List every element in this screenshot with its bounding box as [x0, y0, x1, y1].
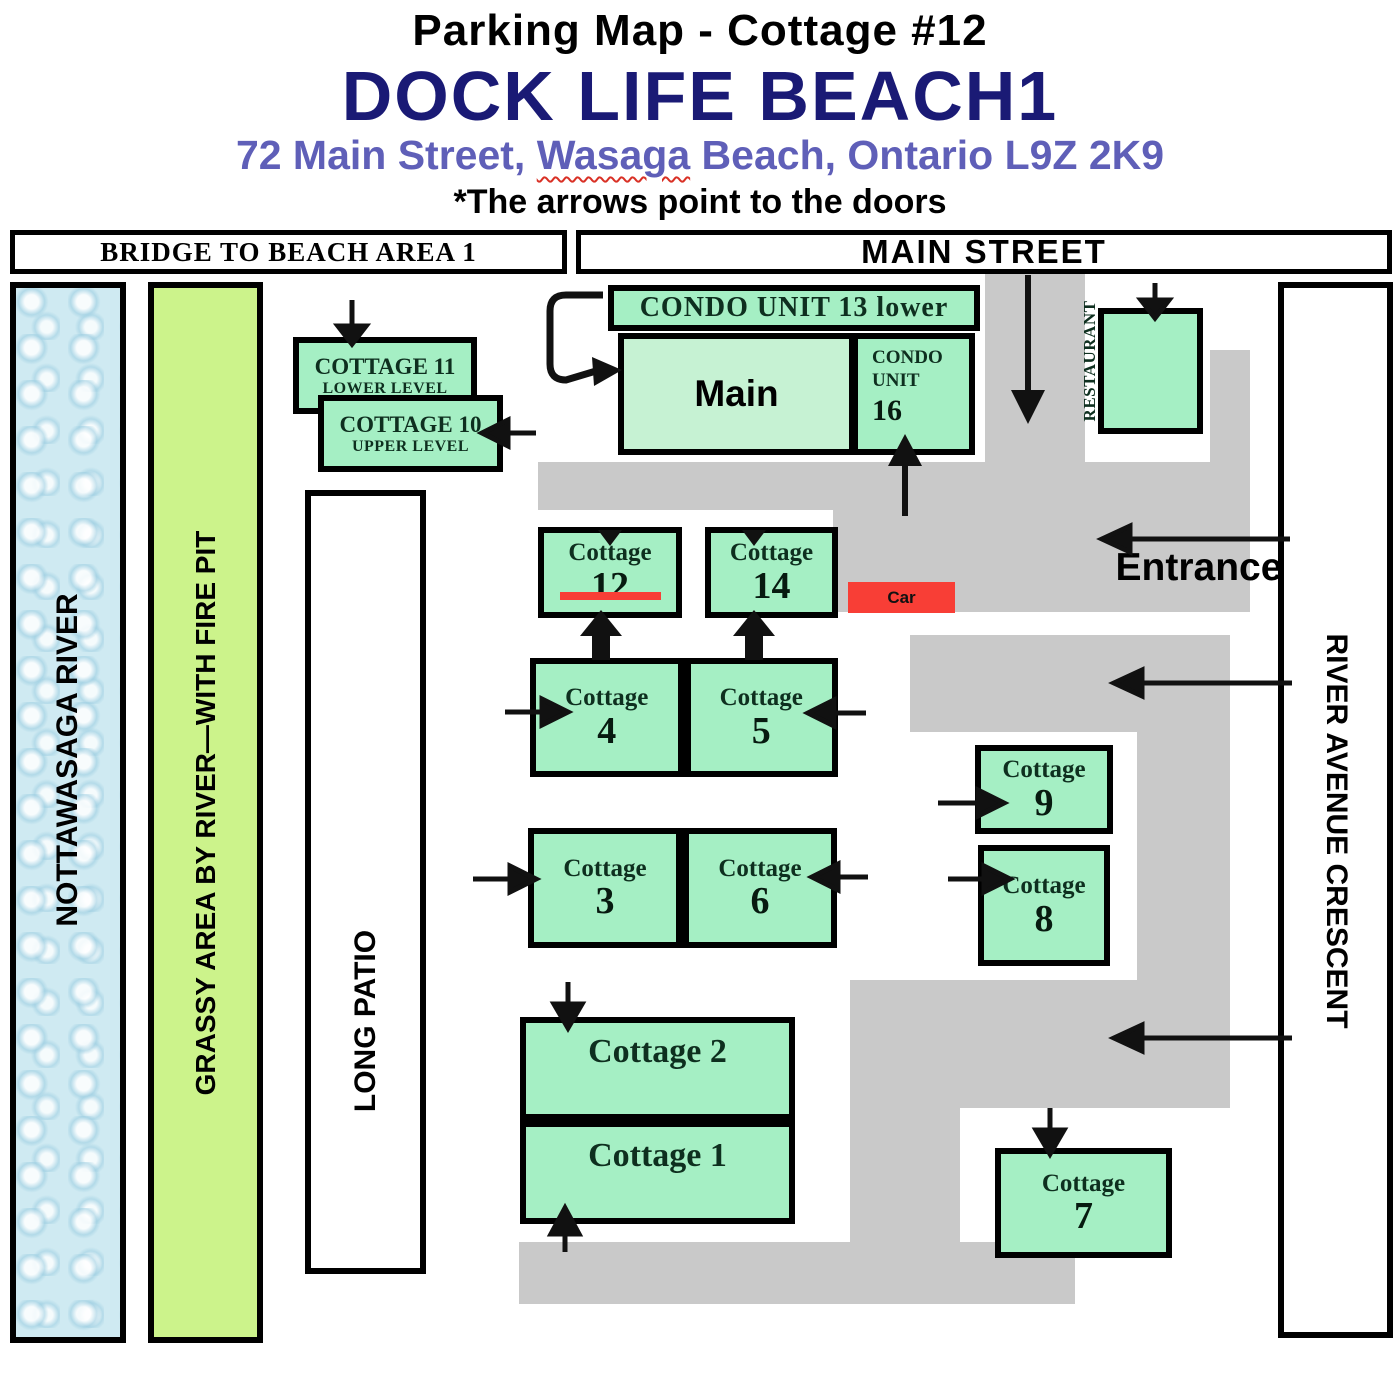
road-from-main-street: [985, 273, 1085, 473]
nottawasaga-river-strip: NOTTAWASAGA RIVER: [10, 282, 126, 1343]
cottage-1-label: Cottage 1: [588, 1137, 727, 1175]
condo-16-line1: CONDO: [872, 347, 943, 370]
arrow-cottage-3-door: [473, 866, 536, 892]
building-condo-unit-13: CONDO UNIT 13 lower: [608, 285, 980, 331]
cottage-1: Cottage 1: [526, 1127, 789, 1218]
grassy-strip-label: GRASSY AREA BY RIVER—WITH FIRE PIT: [190, 530, 222, 1095]
long-patio: LONG PATIO: [305, 490, 426, 1274]
address-line: 72 Main Street, Wasaga Beach, Ontario L9…: [0, 132, 1400, 179]
cottage-4-number: 4: [597, 712, 616, 750]
road-vertical-right: [1137, 732, 1230, 982]
cottage-4: Cottage 4: [536, 664, 678, 771]
cottage-7-word: Cottage: [1042, 1171, 1125, 1197]
cottage-8-word: Cottage: [1002, 873, 1085, 899]
cottage-8-number: 8: [1035, 900, 1054, 938]
building-cottage-14: Cottage 14: [705, 527, 838, 618]
address-squiggle-word: Wasaga: [537, 132, 690, 178]
river-avenue-strip: RIVER AVENUE CRESCENT: [1278, 282, 1393, 1338]
cottage-3: Cottage 3: [534, 834, 676, 942]
cottage-11-label: COTTAGE 11: [315, 354, 456, 380]
main-street-label: MAIN STREET: [576, 230, 1392, 274]
cottage-12-word: Cottage: [568, 540, 651, 566]
cottage-2-label: Cottage 2: [588, 1033, 727, 1071]
condo-16-number: 16: [872, 393, 902, 429]
cottage-10-sublabel: UPPER LEVEL: [352, 438, 469, 456]
cottage-3-number: 3: [596, 882, 615, 920]
cottage-12-red-underline: [560, 592, 661, 600]
building-condo-unit-16: CONDO UNIT 16: [852, 333, 975, 455]
road-column-lower: [850, 1108, 960, 1244]
road-band-bottom: [519, 1242, 1075, 1304]
building-cottage-3-6: Cottage 3 Cottage 6: [528, 828, 837, 948]
cottage-14-number: 14: [753, 567, 791, 605]
building-cottage-7: Cottage 7: [995, 1148, 1172, 1258]
building-cottage-10: COTTAGE 10 UPPER LEVEL: [318, 395, 503, 472]
cottage-4-word: Cottage: [565, 685, 648, 711]
cottage-6: Cottage 6: [689, 834, 831, 942]
cottage-4-5-divider: [678, 664, 691, 771]
address-post: Beach, Ontario L9Z 2K9: [690, 132, 1164, 178]
road-band-mid: [910, 635, 1230, 732]
cottage-7-number: 7: [1074, 1197, 1093, 1235]
arrows-note: *The arrows point to the doors: [0, 183, 1400, 222]
cottage-10-label: COTTAGE 10: [339, 412, 481, 438]
condo-16-line2: UNIT: [872, 370, 920, 393]
cottage-3-word: Cottage: [563, 856, 646, 882]
building-cottage-4-5: Cottage 4 Cottage 5: [530, 658, 838, 777]
long-patio-label: LONG PATIO: [349, 930, 383, 1112]
grassy-area-strip: GRASSY AREA BY RIVER—WITH FIRE PIT: [148, 282, 263, 1343]
cottage-14-word: Cottage: [730, 540, 813, 566]
entrance-label: Entrance: [1098, 546, 1300, 590]
main-building-label: Main: [694, 373, 778, 415]
road-block-lower: [850, 980, 1230, 1108]
cottage-9-word: Cottage: [1002, 757, 1085, 783]
cottage-2-1-divider: [526, 1114, 789, 1127]
building-restaurant: RESTAURANT: [1098, 308, 1203, 434]
cottage-2: Cottage 2: [526, 1023, 789, 1114]
cottage-5: Cottage 5: [691, 664, 833, 771]
building-cottage-12: Cottage 12: [538, 527, 682, 618]
road-notch-restaurant: [1210, 350, 1250, 466]
cottage-6-word: Cottage: [718, 856, 801, 882]
building-main: Main: [618, 333, 855, 455]
restaurant-label: RESTAURANT: [1080, 301, 1100, 422]
address-pre: 72 Main Street,: [236, 132, 537, 178]
cottage-6-number: 6: [751, 882, 770, 920]
building-cottage-9: Cottage 9: [975, 745, 1113, 834]
parking-map: Parking Map - Cottage #12 DOCK LIFE BEAC…: [0, 0, 1400, 1400]
cottage-5-word: Cottage: [720, 685, 803, 711]
cottage-3-6-divider: [676, 834, 689, 942]
river-strip-label: NOTTAWASAGA RIVER: [51, 593, 85, 926]
river-avenue-label: RIVER AVENUE CRESCENT: [1319, 633, 1353, 1028]
building-cottage-8: Cottage 8: [978, 845, 1110, 966]
bridge-to-beach-label: BRIDGE TO BEACH AREA 1: [10, 230, 567, 274]
building-cottage-2-1: Cottage 2 Cottage 1: [520, 1017, 795, 1224]
condo-13-label: CONDO UNIT 13 lower: [640, 292, 949, 324]
resort-name: DOCK LIFE BEACH1: [0, 56, 1400, 136]
cottage-9-number: 9: [1035, 784, 1054, 822]
car-marker: Car: [848, 582, 955, 613]
page-title: Parking Map - Cottage #12: [0, 6, 1400, 56]
cottage-5-number: 5: [752, 712, 771, 750]
